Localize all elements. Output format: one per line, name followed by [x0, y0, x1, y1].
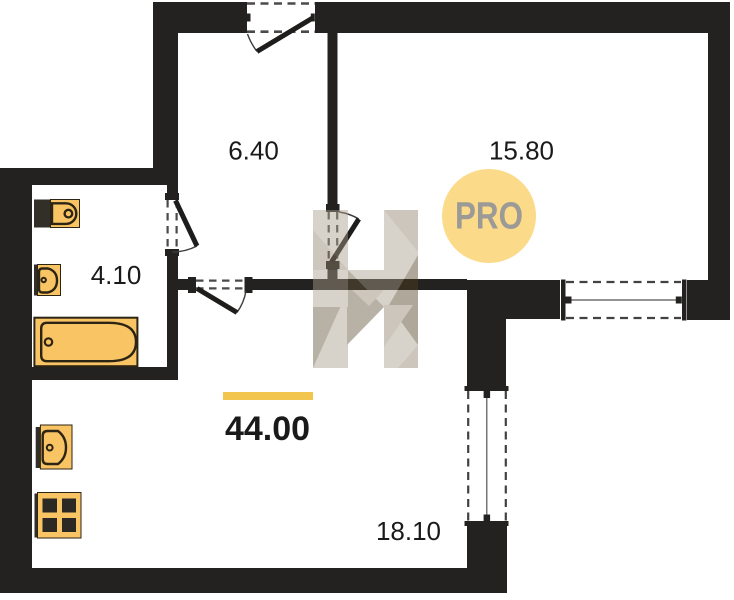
svg-text:PRO: PRO	[455, 196, 523, 238]
svg-text:15.80: 15.80	[489, 136, 554, 166]
svg-text:18.10: 18.10	[376, 516, 441, 546]
svg-text:4.10: 4.10	[91, 260, 142, 290]
svg-text:44.00: 44.00	[225, 410, 310, 448]
svg-text:6.40: 6.40	[228, 136, 279, 166]
